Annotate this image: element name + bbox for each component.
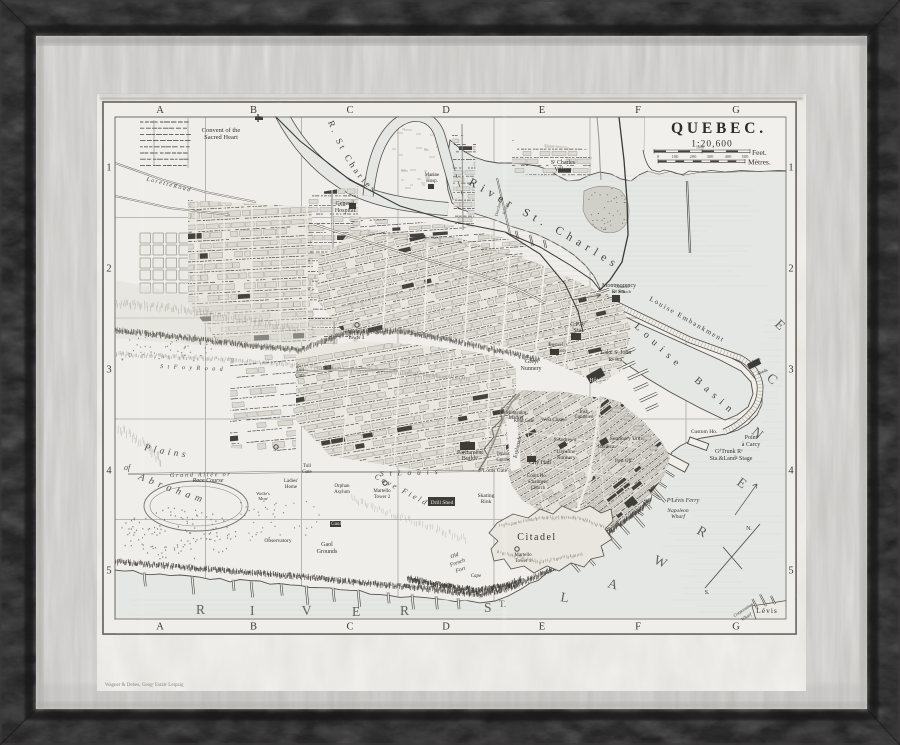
svg-text:SᵗAndrew's: SᵗAndrew's <box>554 438 577 443</box>
svg-text:Basilica: Basilica <box>598 445 615 450</box>
svg-text:Custom Ho.: Custom Ho. <box>691 429 718 435</box>
svg-text:E: E <box>539 105 545 116</box>
svg-text:Citadel: Citadel <box>517 532 556 543</box>
svg-text:Lake Sᵗ John: Lake Sᵗ John <box>601 350 632 356</box>
svg-text:Toll: Toll <box>296 368 305 373</box>
svg-text:1: 1 <box>106 163 111 174</box>
svg-text:V: V <box>302 603 313 618</box>
svg-text:G: G <box>732 622 740 633</box>
svg-text:5: 5 <box>788 566 793 577</box>
svg-text:200: 200 <box>690 154 698 159</box>
svg-text:Orphan: Orphan <box>335 484 350 489</box>
svg-text:Sta.&Landᵍ Stage: Sta.&Landᵍ Stage <box>710 456 753 462</box>
svg-text:400: 400 <box>725 154 733 159</box>
svg-text:Martello: Martello <box>347 330 365 335</box>
svg-text:1: 1 <box>788 163 793 174</box>
svg-text:of SᵗRoch: of SᵗRoch <box>613 289 631 294</box>
svg-text:Marine: Marine <box>425 173 440 178</box>
svg-text:Seminary Univ.: Seminary Univ. <box>610 436 645 442</box>
svg-text:Rʸ Sta.: Rʸ Sta. <box>608 357 624 363</box>
svg-text:Feet.: Feet. <box>752 148 767 157</box>
svg-text:3: 3 <box>788 365 793 376</box>
svg-text:300: 300 <box>707 154 715 159</box>
svg-text:Church: Church <box>531 486 546 491</box>
svg-text:GᵈTrunk Rʸ: GᵈTrunk Rʸ <box>715 449 743 455</box>
svg-text:Gate: Gate <box>302 470 312 475</box>
svg-text:Hospital: Hospital <box>335 208 356 214</box>
svg-text:Tower 1: Tower 1 <box>515 559 532 564</box>
svg-text:Mètres.: Mètres. <box>748 158 771 167</box>
svg-text:Dieu: Dieu <box>590 384 602 390</box>
svg-text:I: I <box>250 603 255 618</box>
svg-text:A: A <box>156 622 164 633</box>
svg-text:Tower 4: Tower 4 <box>348 336 365 341</box>
svg-text:Post Off.: Post Off. <box>615 459 633 464</box>
svg-text:Sta.: Sta. <box>573 328 583 334</box>
svg-text:à Carcy: à Carcy <box>742 442 761 448</box>
svg-text:C: C <box>346 105 353 116</box>
svg-text:2: 2 <box>788 264 793 275</box>
svg-text:Monᵗ: Monᵗ <box>258 496 268 501</box>
svg-text:Village: Village <box>554 167 572 173</box>
svg-text:Ladies': Ladies' <box>284 479 298 484</box>
svg-text:General: General <box>336 201 355 207</box>
svg-text:Convent of the: Convent of the <box>202 127 241 134</box>
svg-text:B: B <box>250 105 257 116</box>
svg-text:Asylum: Asylum <box>334 490 350 495</box>
svg-text:3: 3 <box>106 365 111 376</box>
svg-text:S.: S. <box>705 590 710 596</box>
svg-text:Nunnery: Nunnery <box>556 455 575 461</box>
svg-text:B: B <box>250 622 257 633</box>
svg-text:Grounds: Grounds <box>317 549 338 555</box>
svg-text:Grey: Grey <box>525 359 537 365</box>
svg-text:A: A <box>156 105 164 116</box>
svg-text:Sᵗ Charles: Sᵗ Charles <box>551 160 576 166</box>
svg-text:100: 100 <box>672 154 680 159</box>
svg-text:Nunnery: Nunnery <box>521 366 542 372</box>
svg-text:Kent Gate: Kent Gate <box>514 419 535 424</box>
svg-text:PᵗLévis Ferry: PᵗLévis Ferry <box>666 498 700 504</box>
svg-text:Boswell's: Boswell's <box>548 343 567 348</box>
svg-text:F: F <box>635 105 641 116</box>
svg-text:Gate: Gate <box>295 374 305 379</box>
svg-text:West Chapel: West Chapel <box>541 418 567 423</box>
svg-text:R: R <box>400 603 409 618</box>
svg-text:Point: Point <box>745 435 758 441</box>
svg-text:Drill Shed: Drill Shed <box>431 500 454 506</box>
svg-text:N.: N. <box>746 526 752 532</box>
svg-text:4: 4 <box>106 466 112 477</box>
svg-text:C: C <box>346 622 353 633</box>
svg-text:G: G <box>732 105 740 116</box>
svg-text:Tower 2: Tower 2 <box>374 495 391 500</box>
svg-text:Martello: Martello <box>514 553 532 558</box>
svg-text:Toll: Toll <box>303 464 312 469</box>
svg-text:Race Course: Race Course <box>192 478 224 484</box>
svg-text:F: F <box>635 622 641 633</box>
svg-text:Gaol: Gaol <box>331 522 341 527</box>
svg-text:S: S <box>484 600 492 615</box>
svg-text:Buildᵍˢ: Buildᵍˢ <box>462 456 479 462</box>
svg-text:D: D <box>442 622 450 633</box>
svg-text:Hosp.: Hosp. <box>426 179 438 184</box>
svg-text:Martello: Martello <box>373 489 391 494</box>
svg-text:Gaol: Gaol <box>321 542 333 548</box>
svg-text:Rink: Rink <box>481 499 492 505</box>
svg-text:E: E <box>352 604 360 619</box>
svg-text:City Hall: City Hall <box>529 460 551 466</box>
svg-text:R: R <box>196 602 205 617</box>
svg-text:Court Ho.: Court Ho. <box>527 474 547 479</box>
svg-text:Wharf: Wharf <box>671 513 686 520</box>
svg-text:D: D <box>442 105 450 116</box>
svg-text:Home: Home <box>285 485 298 490</box>
svg-text:Observatory: Observatory <box>264 538 291 544</box>
svg-text:5: 5 <box>106 566 111 577</box>
svg-text:500: 500 <box>742 154 750 159</box>
svg-text:QUEBEC.: QUEBEC. <box>671 120 767 137</box>
svg-text:2: 2 <box>106 264 111 275</box>
svg-text:1000: 1000 <box>696 145 704 150</box>
svg-text:Canadien: Canadien <box>575 415 594 420</box>
svg-text:4: 4 <box>788 466 794 477</box>
svg-text:Wagner & Debes, Geogʳ Estabᵗ L: Wagner & Debes, Geogʳ Estabᵗ Leipzig <box>105 683 184 688</box>
svg-text:E: E <box>539 622 545 633</box>
svg-text:Cape: Cape <box>471 574 482 579</box>
svg-text:Sacred Heart: Sacred Heart <box>204 134 238 141</box>
svg-text:Chalmers: Chalmers <box>528 480 547 485</box>
svg-text:Brewery: Brewery <box>549 349 567 354</box>
svg-text:Lévis: Lévis <box>756 606 778 615</box>
